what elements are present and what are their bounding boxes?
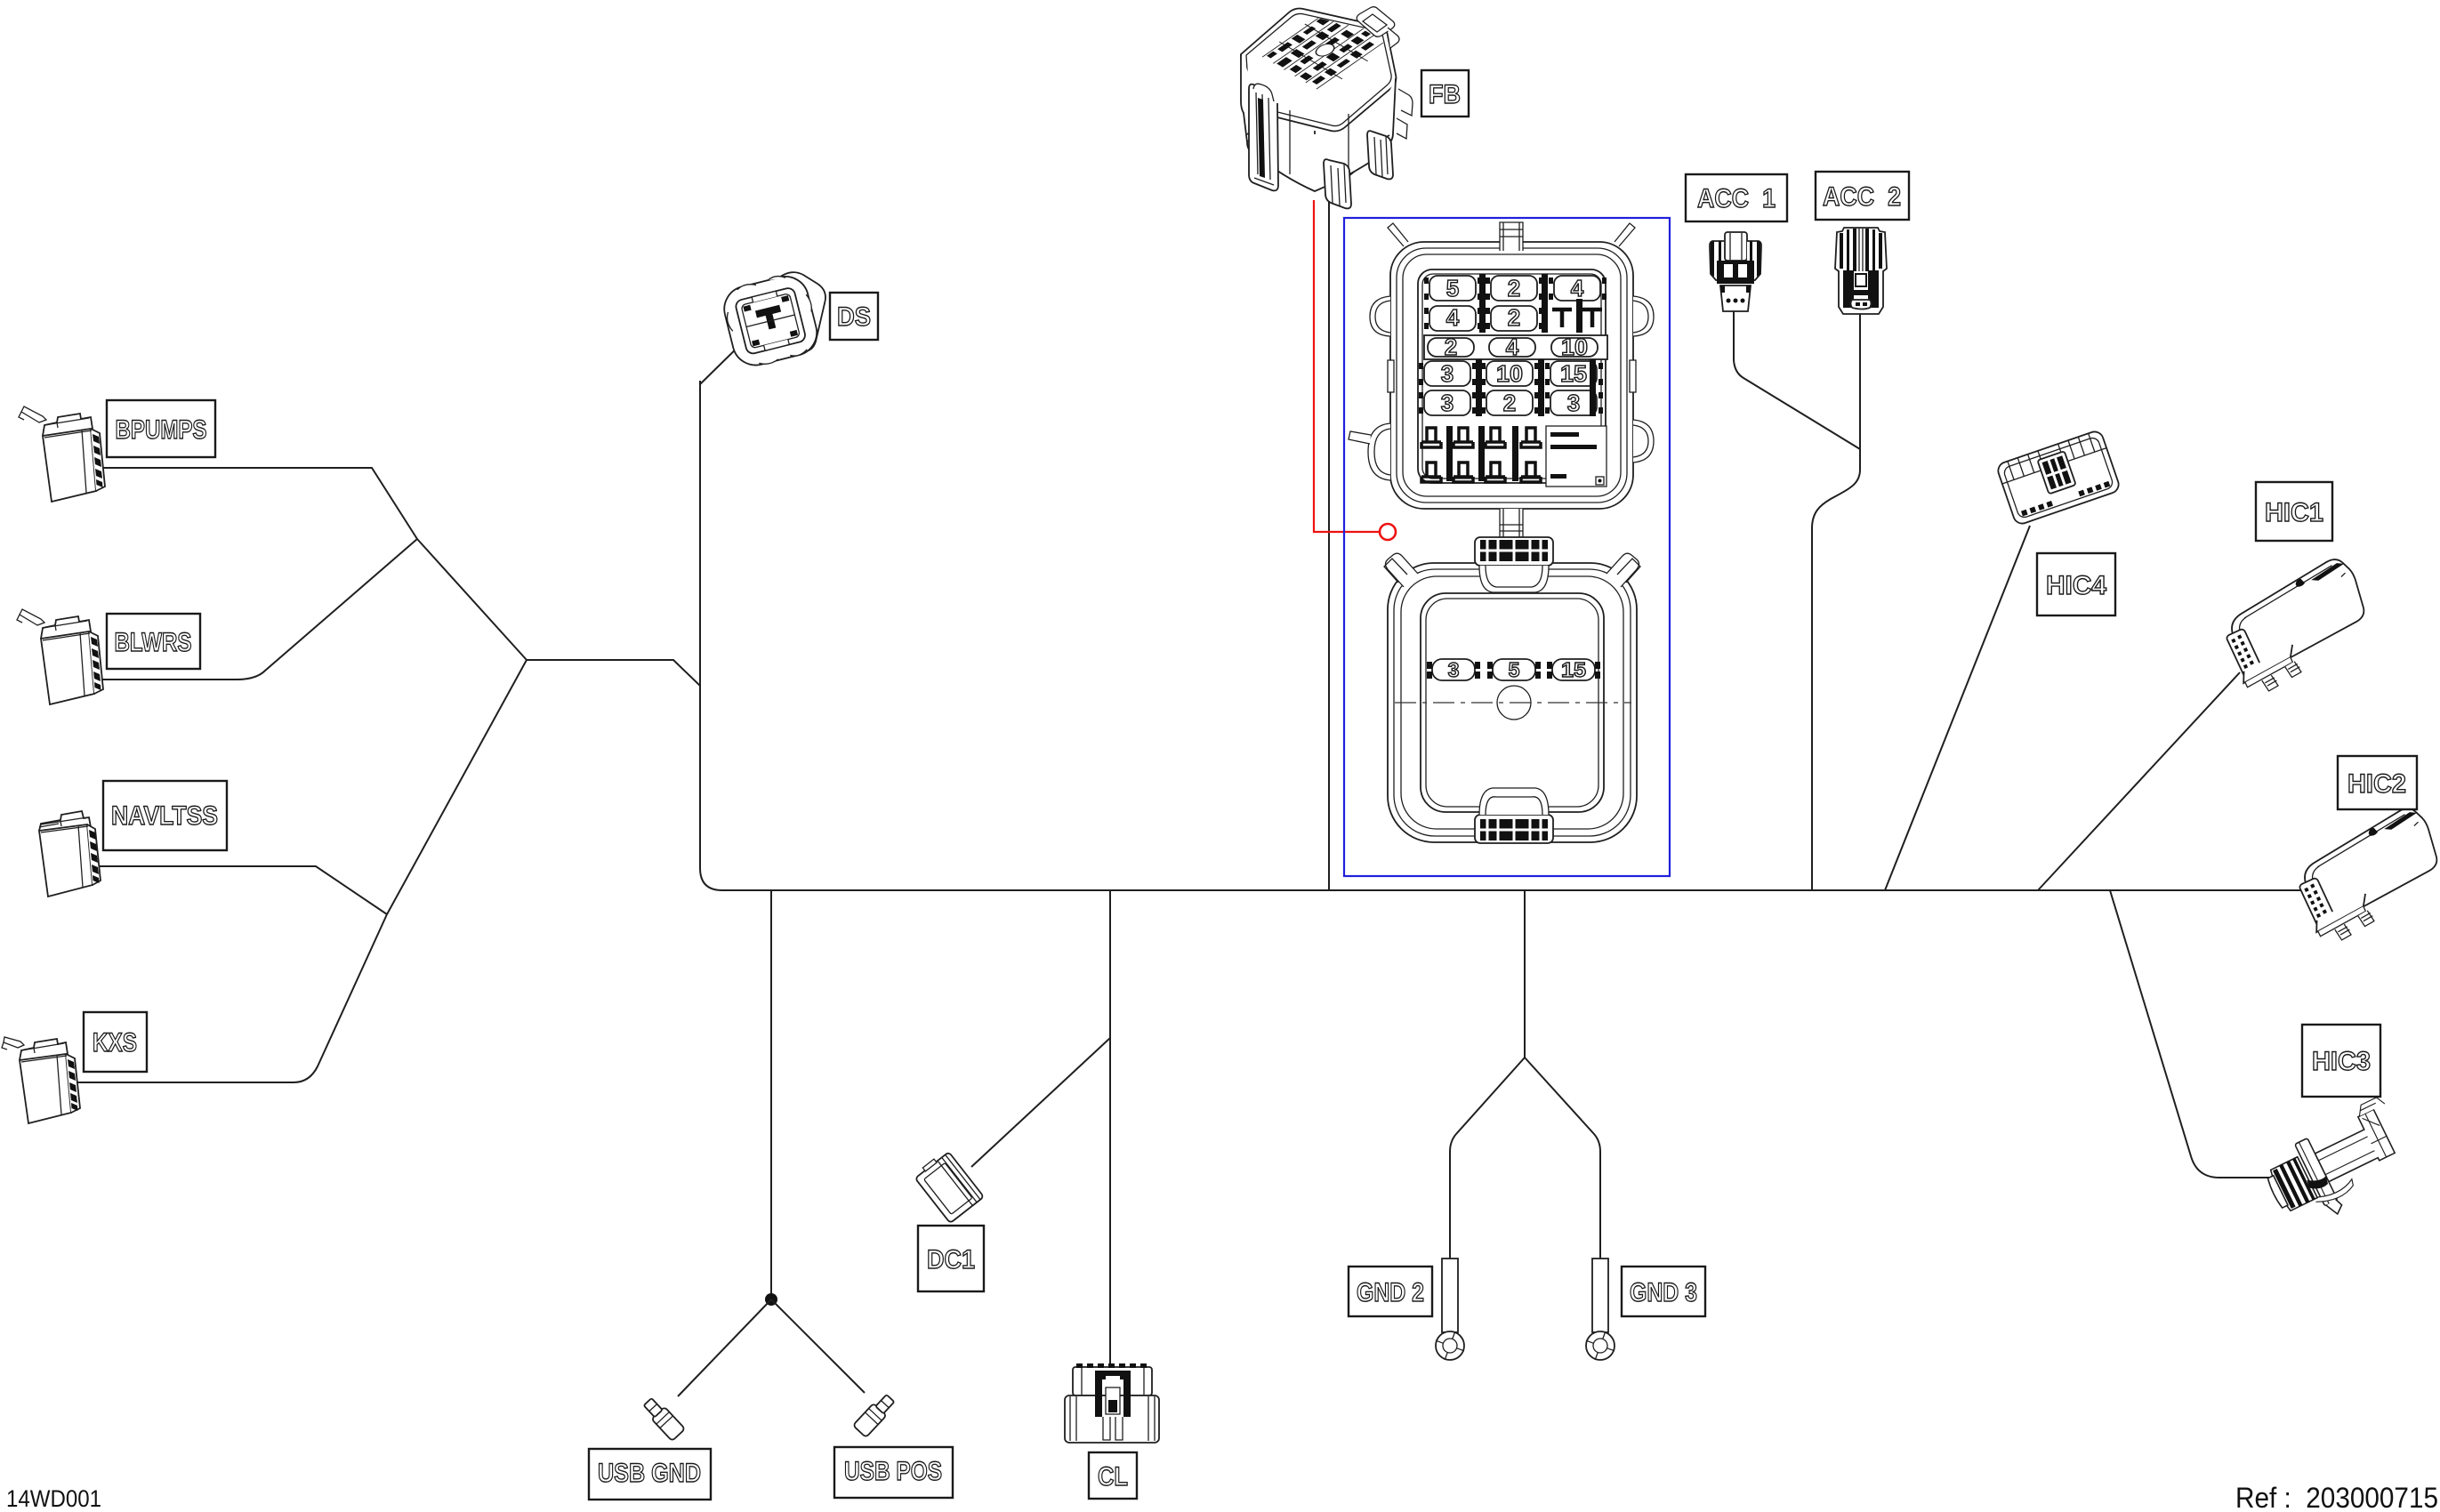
svg-text:4: 4 [1571, 275, 1584, 302]
svg-text:BPUMPS: BPUMPS [116, 415, 207, 445]
svg-text:HIC1: HIC1 [2265, 498, 2323, 527]
svg-text:3: 3 [1441, 390, 1454, 416]
svg-text:10: 10 [1496, 360, 1523, 387]
svg-text:14WD001: 14WD001 [6, 1485, 101, 1512]
svg-text:USB POS: USB POS [844, 1457, 942, 1486]
svg-text:4: 4 [1446, 304, 1460, 331]
svg-text:5: 5 [1509, 658, 1520, 681]
svg-text:5: 5 [1446, 275, 1459, 302]
svg-text:3: 3 [1441, 360, 1454, 387]
svg-text:GND 2: GND 2 [1357, 1278, 1424, 1307]
svg-text:3: 3 [1448, 658, 1460, 681]
svg-text:ACC 2: ACC 2 [1823, 182, 1901, 212]
svg-text:DS: DS [837, 302, 871, 332]
svg-text:USB GND: USB GND [598, 1459, 701, 1488]
svg-text:15: 15 [1561, 658, 1586, 681]
svg-text:GND 3: GND 3 [1630, 1278, 1697, 1307]
svg-text:HIC3: HIC3 [2312, 1047, 2371, 1076]
svg-text:ACC 1: ACC 1 [1697, 184, 1776, 213]
svg-text:DC1: DC1 [927, 1245, 975, 1275]
svg-text:3: 3 [1567, 390, 1580, 416]
svg-text:KXS: KXS [93, 1028, 137, 1058]
svg-text:FB: FB [1429, 80, 1461, 109]
svg-text:HIC2: HIC2 [2347, 769, 2406, 799]
svg-text:15: 15 [1560, 360, 1587, 387]
svg-text:CL: CL [1098, 1462, 1128, 1492]
svg-text:NAVLTSS: NAVLTSS [111, 801, 218, 831]
svg-text:2: 2 [1508, 275, 1520, 302]
svg-text:2: 2 [1445, 334, 1457, 360]
svg-text:10: 10 [1561, 334, 1588, 360]
svg-text:4: 4 [1506, 334, 1519, 360]
svg-text:HIC4: HIC4 [2046, 571, 2106, 600]
svg-text:BLWRS: BLWRS [115, 628, 192, 657]
svg-text:2: 2 [1508, 304, 1520, 331]
svg-text:Ref : 203000715: Ref : 203000715 [2235, 1482, 2438, 1512]
svg-text:2: 2 [1503, 390, 1516, 416]
